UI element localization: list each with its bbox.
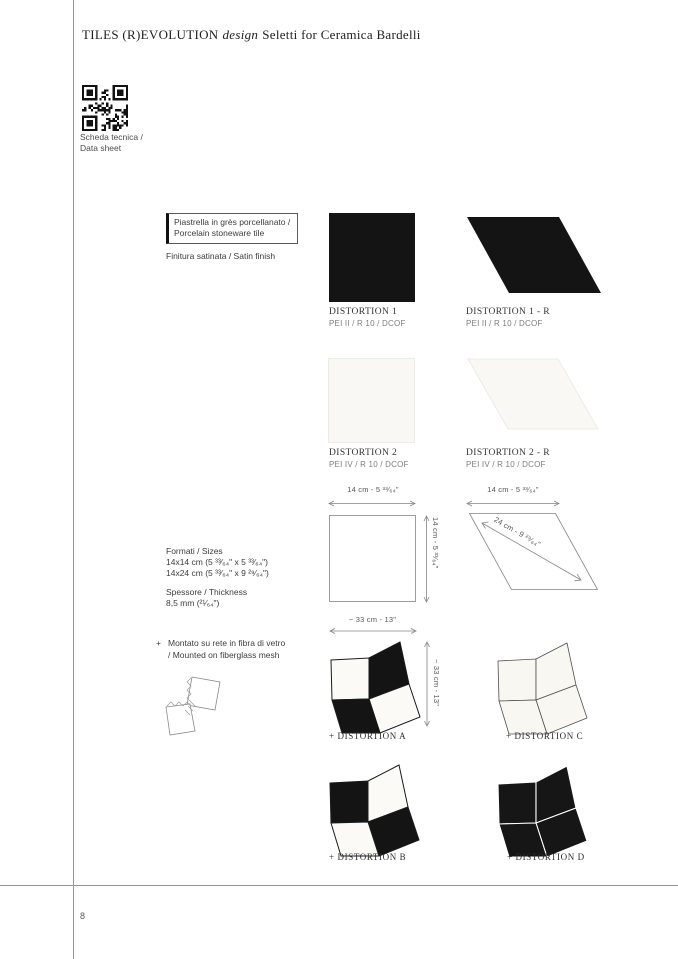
sizes-heading: Formati / Sizes [166,546,269,557]
composition-distortion-d [489,741,594,863]
composition-label-b: + DISTORTION B [329,852,406,862]
page-title: TILES (R)EVOLUTIONdesignSeletti for Cera… [82,27,421,43]
parallelogram-width-dim: 14 cm - 5 ³³⁄₆₄" [464,485,562,494]
tile-distortion-1 [329,213,415,302]
composition-distortion-b [321,740,426,862]
product-label-2: DISTORTION 2 PEI IV / R 10 / DCOF [329,448,409,469]
mesh-note-it: Montato su rete in fibra di vetro [168,638,285,650]
tile-square [330,781,368,823]
thickness-value: 8,5 mm (²¹⁄₆₄") [166,598,269,609]
thickness-heading: Spessore / Thickness [166,587,269,598]
material-en: Porcelain stoneware tile [174,228,292,239]
composition-distortion-c [489,618,594,740]
square-width-dim: 14 cm - 5 ³³⁄₆₄" [327,485,419,494]
datasheet-page: TILES (R)EVOLUTIONdesignSeletti for Cera… [0,0,678,959]
mesh-note: Montato su rete in fibra di vetro / Moun… [168,638,285,661]
tile-distortion-1r [465,214,605,296]
composition-height-dim: ~ 33 cm - 13" [432,659,441,706]
brand-name: TILES (R)EVOLUTION [82,27,218,42]
tile-distortion-2r [465,357,605,433]
composition-label-c: + DISTORTION C [506,731,583,741]
product-label-1r: DISTORTION 1 - R PEI II / R 10 / DCOF [466,307,550,328]
product-specs: PEI II / R 10 / DCOF [466,319,550,328]
left-margin-rule [73,0,74,959]
mesh-note-en: / Mounted on fiberglass mesh [168,650,285,662]
square-dimension-diagram [325,496,437,606]
product-label-1: DISTORTION 1 PEI II / R 10 / DCOF [329,307,405,328]
black-parallelogram [467,217,601,293]
size-row: 14x24 cm (5 ³³⁄₆₄" x 9 ²⁹⁄₆₄") [166,568,269,579]
qr-caption: Scheda tecnica / Data sheet [80,132,143,154]
fiberglass-mesh-icon [162,675,224,737]
design-word: design [222,27,258,42]
tile-distortion-2 [328,358,415,443]
tile-square [331,658,369,700]
material-it: Piastrella in grès porcellanato / [174,217,292,228]
mesh-plus: + [156,638,161,648]
finish-note: Finitura satinata / Satin finish [166,251,275,261]
size-row: 14x14 cm (5 ³³⁄₆₄" x 5 ³³⁄₆₄") [166,557,269,568]
product-specs: PEI II / R 10 / DCOF [329,319,405,328]
composition-label-d: + DISTORTION D [507,852,585,862]
material-box: Piastrella in grès porcellanato / Porcel… [166,213,298,244]
square-height-dim: 14 cm - 5 ³³⁄₆₄" [431,517,440,569]
product-name: DISTORTION 2 - R [466,448,550,458]
product-name: DISTORTION 2 [329,448,409,458]
product-specs: PEI IV / R 10 / DCOF [466,460,550,469]
byline: Seletti for Ceramica Bardelli [262,27,421,42]
composition-height-arrow [423,641,431,727]
tile-square [498,782,536,824]
qr-code-icon [82,85,128,131]
page-number: 8 [80,911,85,921]
composition-distortion-a [322,617,427,739]
sizes-block: Formati / Sizes 14x14 cm (5 ³³⁄₆₄" x 5 ³… [166,546,269,609]
qr-caption-en: Data sheet [80,143,143,154]
product-name: DISTORTION 1 [329,307,405,317]
footer-rule [0,885,678,886]
tile-square [498,659,536,701]
product-label-2r: DISTORTION 2 - R PEI IV / R 10 / DCOF [466,448,550,469]
product-specs: PEI IV / R 10 / DCOF [329,460,409,469]
qr-caption-it: Scheda tecnica / [80,132,143,143]
white-parallelogram [468,359,598,429]
product-name: DISTORTION 1 - R [466,307,550,317]
